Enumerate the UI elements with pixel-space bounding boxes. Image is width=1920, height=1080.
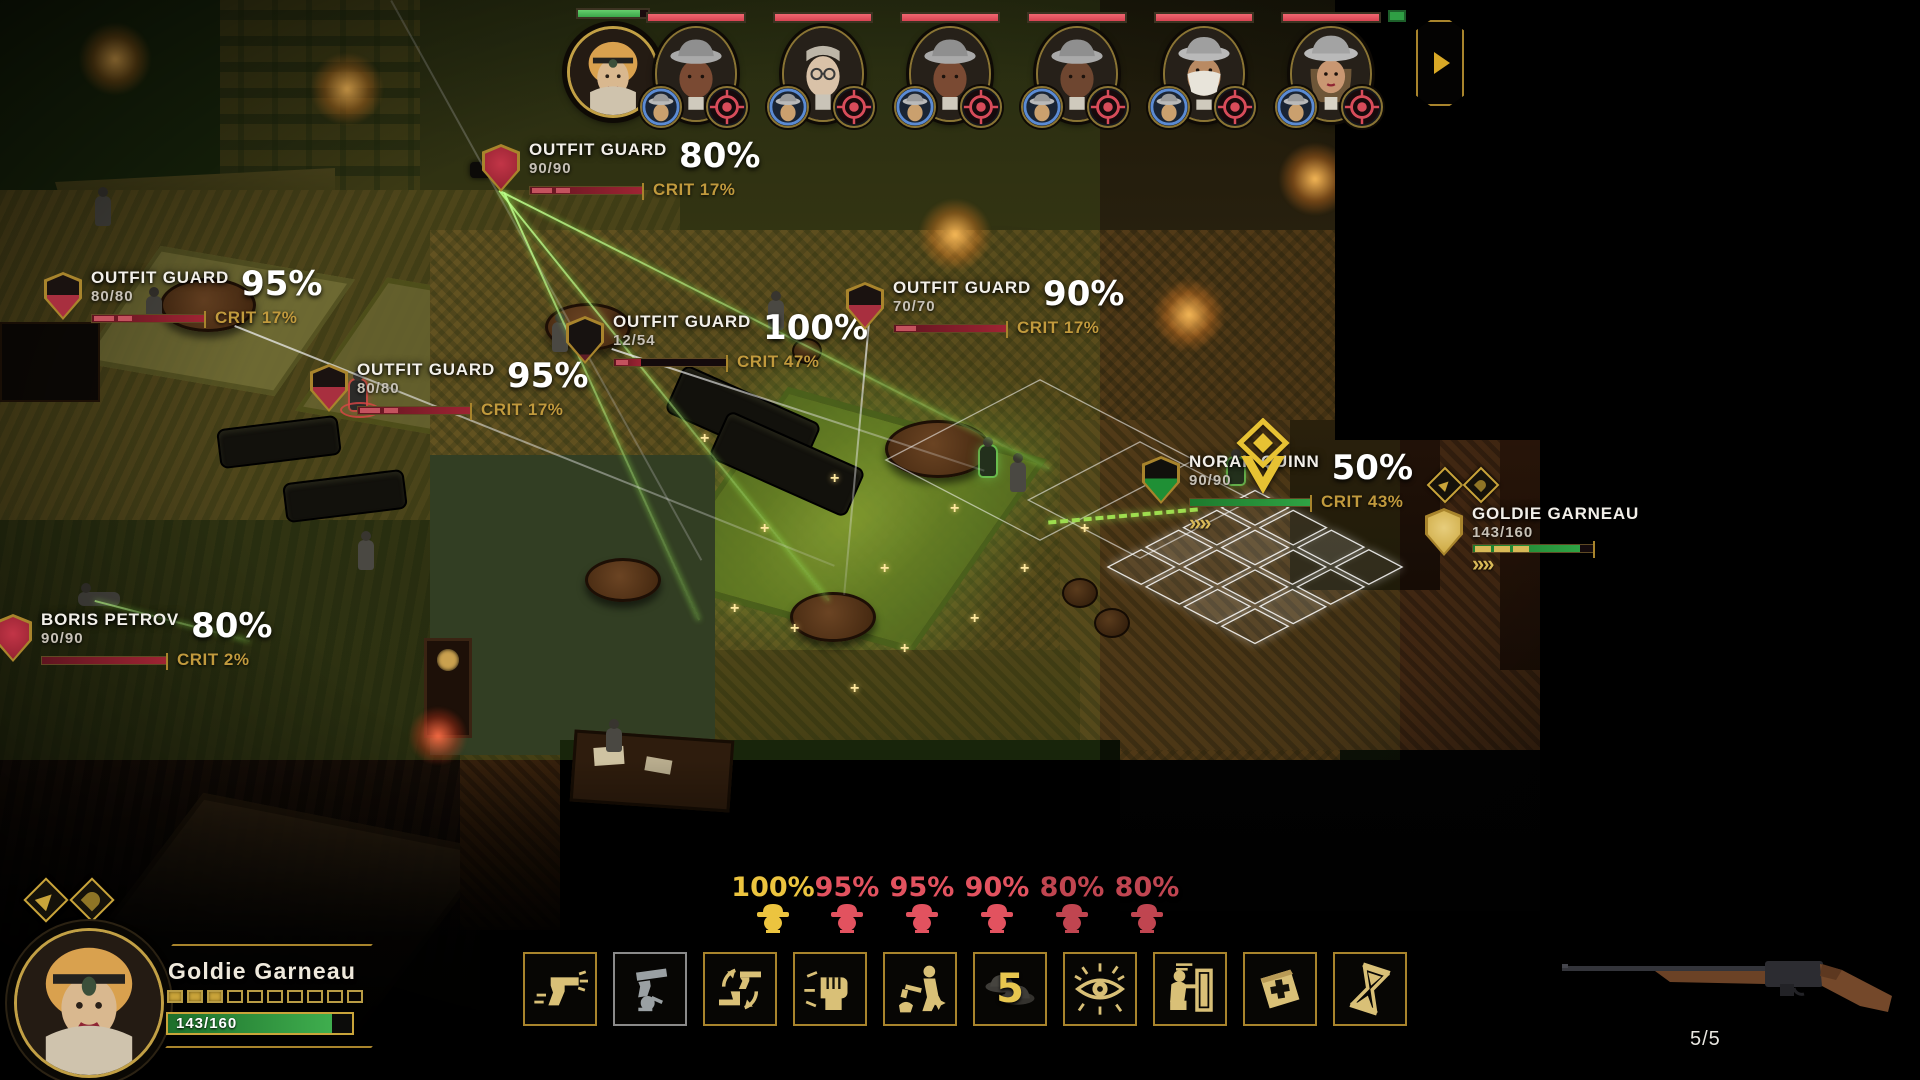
target-hit-chance[interactable]: 100% — [737, 872, 809, 933]
ability-call-backup[interactable]: 5 — [973, 952, 1047, 1026]
crit-chance: CRIT 2% — [177, 650, 249, 670]
character-name: Goldie Garneau — [168, 958, 356, 985]
resource-pips — [167, 990, 363, 1003]
hp-bar — [357, 406, 471, 415]
offscreen-ally-hp-sliver — [1388, 10, 1406, 22]
target-hit-chance[interactable]: 80% — [1111, 872, 1183, 933]
target-hit-chance[interactable]: 95% — [886, 872, 958, 933]
execute-icon — [892, 961, 948, 1017]
pistol-icon — [532, 961, 588, 1017]
ability-reload[interactable] — [613, 952, 687, 1026]
ability-overwatch[interactable] — [1063, 952, 1137, 1026]
aggro-reticle-icon — [706, 86, 748, 128]
fist-icon — [802, 961, 858, 1017]
enemy-hp-bar — [646, 12, 746, 23]
enemy-hp-bar — [900, 12, 1000, 23]
target-hit-chance[interactable]: 90% — [961, 872, 1033, 933]
crit-chance: CRIT 17% — [653, 180, 735, 200]
crit-chance: CRIT 17% — [481, 400, 563, 420]
hp-shield-icon: ★★★ — [1425, 508, 1463, 556]
target-hit-chance[interactable]: 95% — [811, 872, 883, 933]
hp-bar — [613, 358, 727, 367]
rifle-image — [1560, 948, 1900, 1020]
character-portrait[interactable] — [14, 928, 164, 1078]
enemy-target-icon — [1148, 86, 1190, 128]
aggro-reticle-icon — [1341, 86, 1383, 128]
weapon-ammo: 5/5 — [1690, 1028, 1721, 1051]
first-aid-icon — [1252, 961, 1308, 1017]
action-point-chevrons: »» — [1189, 514, 1413, 532]
enemy-target-icon — [640, 86, 682, 128]
cover-icon — [1162, 961, 1218, 1017]
enemy-target-icon — [1275, 86, 1317, 128]
expand-button[interactable] — [1416, 20, 1464, 106]
enemy-head-icon — [905, 903, 939, 933]
hit-chance: 80% — [679, 140, 760, 172]
unit-label-outfit-guard[interactable]: OUTFIT GUARD 80/80 95% CRIT 17% — [44, 268, 322, 328]
ability-melee[interactable] — [793, 952, 867, 1026]
enemy-hp-bar — [1154, 12, 1254, 23]
panel-frame — [165, 1046, 373, 1048]
ability-first-aid[interactable] — [1243, 952, 1317, 1026]
hp-bar — [1472, 544, 1594, 553]
unit-label-goldie-garneau[interactable]: ★★★ GOLDIE GARNEAU 143/160 »» — [1425, 504, 1639, 573]
roof-silhouette — [430, 455, 715, 755]
hp-shield-icon — [310, 364, 348, 412]
aggro-reticle-icon — [1087, 86, 1129, 128]
aggro-reticle-icon — [1214, 86, 1256, 128]
unit-label-outfit-guard[interactable]: OUTFIT GUARD 90/90 80% CRIT 17% — [482, 140, 760, 200]
hourglass-icon — [1342, 961, 1398, 1017]
enemy-head-icon — [1055, 903, 1089, 933]
round-table — [585, 558, 661, 602]
civilian-figure[interactable] — [606, 728, 622, 752]
hp-shield-icon — [44, 272, 82, 320]
hp-bar — [91, 314, 205, 323]
hp-bar — [529, 186, 643, 195]
ally-norah-figure[interactable] — [980, 446, 996, 476]
crit-chance: CRIT 17% — [215, 308, 297, 328]
reload-icon — [622, 961, 678, 1017]
ability-wait[interactable] — [1333, 952, 1407, 1026]
unit-label-outfit-guard[interactable]: OUTFIT GUARD 70/70 90% CRIT 17% — [846, 278, 1124, 338]
hp-shield-icon — [566, 316, 604, 364]
hit-chance: 90% — [1043, 278, 1124, 310]
ally-boris-figure[interactable] — [78, 592, 120, 606]
panel-frame — [171, 944, 373, 946]
aggro-reticle-icon — [960, 86, 1002, 128]
crit-chance: CRIT 47% — [737, 352, 819, 372]
enemy-hp-bar — [1027, 12, 1127, 23]
crit-chance: CRIT 17% — [1017, 318, 1099, 338]
enemy-hp-bar — [773, 12, 873, 23]
enemy-hp-bar — [1281, 12, 1381, 23]
hp-bar — [893, 324, 1007, 333]
aggro-reticle-icon — [833, 86, 875, 128]
backup-count: 5 — [996, 966, 1024, 1012]
hp-bar — [41, 656, 167, 665]
leader-hp-bar — [576, 8, 650, 19]
hit-chance: 95% — [241, 268, 322, 300]
unit-label-boris-petrov[interactable]: BORIS PETROV 90/90 80% CRIT 2% — [0, 610, 272, 670]
enemy-head-icon — [1130, 903, 1164, 933]
hp-shield-icon — [482, 144, 520, 192]
hit-chance: 80% — [191, 610, 272, 642]
crit-chance: CRIT 43% — [1321, 492, 1403, 512]
unit-label-outfit-guard[interactable]: OUTFIT GUARD 12/54 100% CRIT 47% — [566, 312, 868, 372]
hp-shield-icon — [1142, 456, 1180, 504]
piano — [0, 322, 100, 402]
enemy-head-icon — [980, 903, 1014, 933]
round-table — [790, 592, 876, 642]
hp-shield-icon — [846, 282, 884, 330]
card-table — [885, 420, 991, 478]
bartender-figure[interactable] — [95, 196, 111, 226]
ability-execute[interactable] — [883, 952, 957, 1026]
enemy-head-icon — [756, 903, 790, 933]
character-hp-bar: 143/160 — [166, 1012, 354, 1035]
ability-take-cover[interactable] — [1153, 952, 1227, 1026]
barrel — [1062, 578, 1098, 608]
enemy-head-icon — [830, 903, 864, 933]
enemy-target-icon — [767, 86, 809, 128]
target-hit-chance[interactable]: 80% — [1036, 872, 1108, 933]
enemy-target-icon — [1021, 86, 1063, 128]
game-screen: +++ +++ +++ +++ — [0, 0, 1920, 1080]
swap-weapons-icon — [712, 961, 768, 1017]
goldie-face — [17, 931, 161, 1075]
ability-shoot[interactable] — [523, 952, 597, 1026]
hp-shield-icon — [0, 614, 32, 662]
selected-unit-marker — [1236, 418, 1290, 501]
hit-chance: 50% — [1332, 452, 1413, 484]
enemy-figure[interactable] — [1010, 462, 1026, 492]
enemy-figure[interactable] — [358, 540, 374, 570]
enemy-target-icon — [894, 86, 936, 128]
ability-swap-weapon[interactable] — [703, 952, 777, 1026]
action-point-chevrons: »» — [1472, 555, 1639, 573]
play-arrow-icon — [1434, 52, 1450, 74]
character-hp-text: 143/160 — [176, 1015, 237, 1032]
barrel — [1094, 608, 1130, 638]
scene-edge — [0, 0, 220, 190]
unit-label-outfit-guard[interactable]: OUTFIT GUARD 80/80 95% CRIT 17% — [310, 360, 588, 420]
eye-icon — [1072, 961, 1128, 1017]
grandfather-clock — [424, 638, 472, 738]
